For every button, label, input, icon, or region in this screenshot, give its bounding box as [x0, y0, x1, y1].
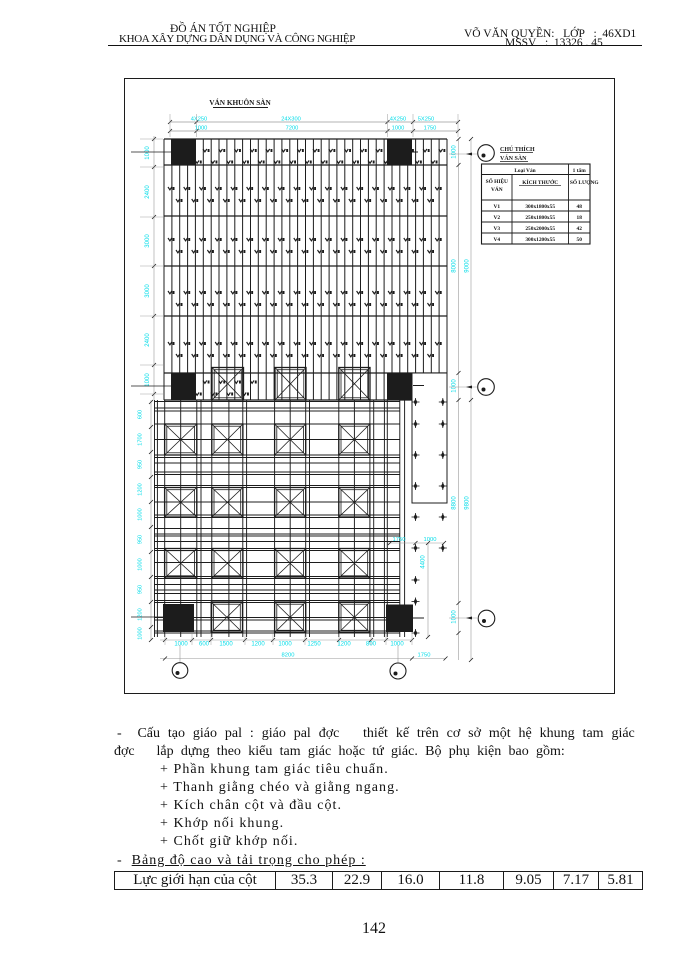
svg-text:250x2000x55: 250x2000x55 [525, 226, 555, 232]
svg-text:1000: 1000 [195, 126, 208, 132]
svg-text:V2: V2 [494, 215, 501, 221]
svg-text:18: 18 [577, 215, 583, 221]
svg-text:1000: 1000 [392, 126, 405, 132]
svg-text:1750: 1750 [393, 537, 406, 543]
svg-text:4X250: 4X250 [390, 117, 406, 123]
svg-text:1000: 1000 [278, 642, 292, 648]
svg-text:VÁN SÀN: VÁN SÀN [500, 154, 527, 162]
svg-text:1000: 1000 [452, 145, 458, 159]
svg-text:1500: 1500 [219, 642, 233, 648]
svg-text:600: 600 [199, 642, 210, 648]
svg-text:V3: V3 [494, 226, 501, 232]
svg-text:300x1800x55: 300x1800x55 [525, 204, 555, 210]
svg-text:9000: 9000 [464, 259, 470, 273]
svg-text:950: 950 [138, 460, 144, 469]
svg-text:50: 50 [577, 237, 583, 243]
svg-text:1200: 1200 [337, 642, 351, 648]
svg-text:250x1800x55: 250x1800x55 [525, 215, 555, 221]
svg-text:1250: 1250 [307, 642, 321, 648]
svg-text:1200: 1200 [251, 642, 265, 648]
svg-text:1000: 1000 [452, 379, 458, 393]
svg-text:1700: 1700 [138, 433, 144, 445]
svg-text:1200: 1200 [138, 608, 144, 620]
svg-text:SỐ LƯỢNG: SỐ LƯỢNG [570, 178, 600, 186]
svg-text:1 tấm: 1 tấm [573, 167, 587, 174]
svg-text:300x1200x55: 300x1200x55 [525, 237, 555, 243]
svg-text:1000: 1000 [145, 146, 151, 160]
svg-text:8200: 8200 [282, 653, 295, 659]
svg-text:600: 600 [138, 410, 144, 419]
svg-text:V1: V1 [494, 204, 501, 210]
svg-text:3000: 3000 [145, 284, 151, 298]
svg-text:3000: 3000 [145, 234, 151, 248]
svg-text:1000: 1000 [145, 373, 151, 387]
svg-text:1750: 1750 [424, 126, 437, 132]
svg-text:1000: 1000 [138, 558, 144, 570]
svg-text:KÍCH THƯỚC: KÍCH THƯỚC [522, 178, 558, 186]
svg-text:800: 800 [366, 642, 377, 648]
svg-text:CHÚ THÍCH: CHÚ THÍCH [500, 145, 535, 153]
svg-text:V4: V4 [494, 237, 501, 243]
svg-text:VÁN KHUÔN SÀN: VÁN KHUÔN SÀN [209, 97, 271, 107]
svg-text:7200: 7200 [286, 126, 299, 132]
svg-text:1000: 1000 [138, 508, 144, 520]
svg-text:950: 950 [138, 585, 144, 594]
svg-text:2400: 2400 [145, 185, 151, 199]
svg-text:1200: 1200 [138, 483, 144, 495]
svg-text:48: 48 [577, 204, 583, 210]
svg-text:2400: 2400 [145, 333, 151, 347]
svg-text:SỐ HIỆU: SỐ HIỆU [486, 177, 508, 185]
svg-text:1000: 1000 [390, 642, 404, 648]
svg-text:1750: 1750 [418, 653, 431, 659]
svg-text:8800: 8800 [452, 496, 458, 510]
svg-text:9800: 9800 [464, 496, 470, 510]
svg-text:8000: 8000 [452, 259, 458, 273]
svg-text:42: 42 [577, 226, 583, 232]
svg-text:4400: 4400 [421, 555, 427, 569]
svg-text:1000: 1000 [452, 610, 458, 624]
svg-text:Loại Ván: Loại Ván [514, 168, 535, 174]
svg-text:4X250: 4X250 [191, 117, 207, 123]
svg-text:VÁN: VÁN [491, 185, 503, 193]
svg-text:24X300: 24X300 [281, 117, 301, 123]
svg-text:1000: 1000 [424, 537, 437, 543]
svg-text:1000: 1000 [138, 627, 144, 639]
svg-text:5X250: 5X250 [418, 117, 434, 123]
svg-text:950: 950 [138, 535, 144, 544]
svg-text:1000: 1000 [174, 642, 188, 648]
